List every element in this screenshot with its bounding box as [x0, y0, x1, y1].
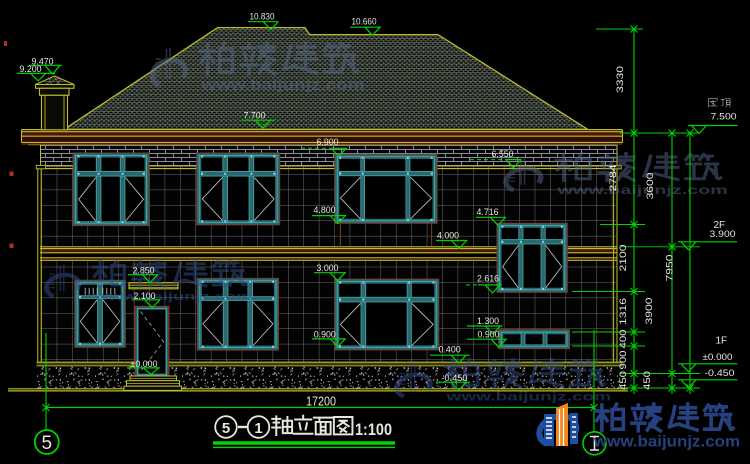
- svg-text:2.616: 2.616: [477, 273, 499, 283]
- svg-text:±0.000: ±0.000: [703, 352, 733, 362]
- svg-text:6.900: 6.900: [317, 137, 339, 147]
- svg-text:0.400: 0.400: [439, 345, 461, 355]
- svg-text:4.716: 4.716: [477, 207, 499, 217]
- svg-text:10.830: 10.830: [250, 11, 275, 21]
- svg-text:www.baijunjz.com: www.baijunjz.com: [593, 434, 740, 451]
- svg-text:9.200: 9.200: [20, 64, 42, 74]
- svg-text:0.900: 0.900: [478, 330, 500, 340]
- svg-text:3330: 3330: [615, 66, 626, 93]
- svg-text:1.300: 1.300: [477, 316, 499, 326]
- svg-text:www.baijunjz.com: www.baijunjz.com: [93, 290, 253, 303]
- svg-text:1F: 1F: [716, 335, 728, 346]
- svg-text:17200: 17200: [306, 395, 336, 409]
- svg-text:-0.450: -0.450: [705, 368, 735, 378]
- svg-text:7950: 7950: [665, 255, 676, 282]
- svg-text:450: 450: [642, 371, 653, 390]
- svg-text:10.660: 10.660: [352, 17, 377, 27]
- svg-text:1316: 1316: [618, 298, 629, 325]
- svg-text:1:100: 1:100: [355, 421, 392, 439]
- svg-text:www.baijunjz.com: www.baijunjz.com: [200, 78, 364, 93]
- svg-text:400: 400: [618, 330, 629, 349]
- svg-text:3.000: 3.000: [317, 263, 339, 273]
- svg-text:5: 5: [222, 420, 230, 437]
- svg-text:6.550: 6.550: [492, 149, 514, 159]
- svg-text:4.800: 4.800: [314, 205, 336, 215]
- svg-text:7.500: 7.500: [711, 112, 737, 122]
- svg-text:2.100: 2.100: [134, 291, 156, 301]
- svg-text:2784: 2784: [608, 164, 619, 192]
- svg-text:0.900: 0.900: [314, 329, 336, 339]
- svg-text:±0.000: ±0.000: [131, 359, 158, 369]
- svg-text:3900: 3900: [644, 298, 655, 325]
- svg-text:2.850: 2.850: [133, 266, 155, 276]
- svg-text:www.baijunjz.com: www.baijunjz.com: [445, 389, 611, 403]
- svg-text:2F: 2F: [714, 220, 726, 231]
- svg-text:900: 900: [618, 351, 629, 370]
- svg-text:3600: 3600: [645, 173, 656, 200]
- svg-text:www.baijunjz.com: www.baijunjz.com: [556, 183, 728, 197]
- svg-text:7.700: 7.700: [244, 111, 266, 121]
- svg-text:-0.450: -0.450: [442, 373, 468, 383]
- svg-text:4.000: 4.000: [437, 231, 459, 241]
- svg-text:5: 5: [42, 433, 53, 454]
- svg-text:450: 450: [618, 371, 629, 390]
- svg-text:2100: 2100: [618, 245, 629, 272]
- svg-text:1: 1: [254, 420, 262, 437]
